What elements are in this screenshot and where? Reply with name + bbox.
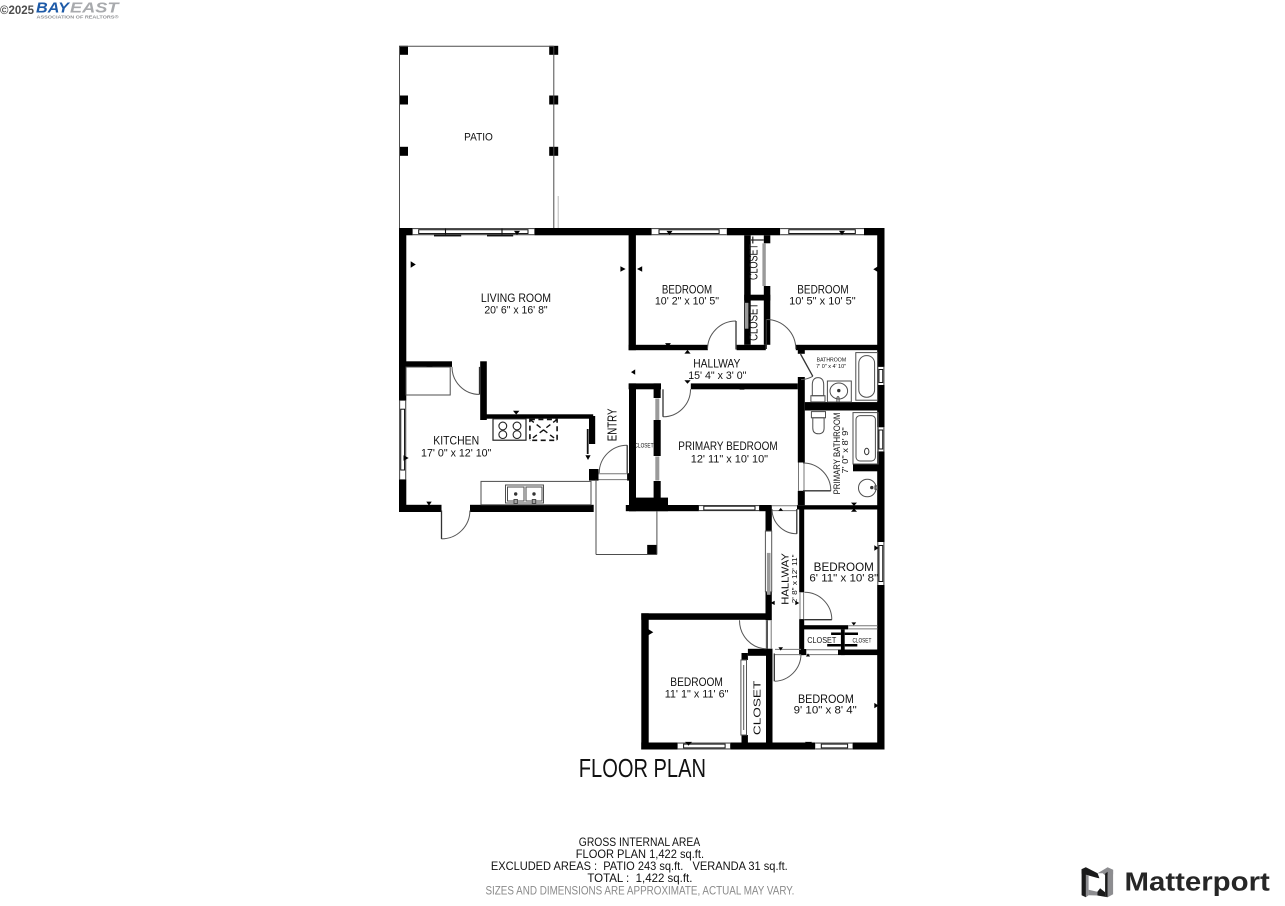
svg-text:BATHROOM: BATHROOM	[817, 358, 847, 364]
svg-text:CLOSET: CLOSET	[635, 444, 654, 450]
svg-text:SIZES AND DIMENSIONS ARE APPRO: SIZES AND DIMENSIONS ARE APPROXIMATE, AC…	[485, 884, 794, 897]
svg-text:CLOSET: CLOSET	[746, 244, 760, 280]
svg-text:20' 6" x 16' 8": 20' 6" x 16' 8"	[484, 305, 547, 317]
svg-text:CLOSET: CLOSET	[746, 302, 760, 341]
svg-text:TOTAL : 1,422 sq.ft.: TOTAL : 1,422 sq.ft.	[587, 872, 692, 885]
svg-text:CLOSET: CLOSET	[852, 638, 871, 644]
svg-text:FLOOR PLAN: FLOOR PLAN	[579, 753, 706, 783]
svg-text:2' 8" x 12' 11": 2' 8" x 12' 11"	[790, 554, 799, 603]
svg-text:HALLWAY: HALLWAY	[693, 357, 740, 370]
svg-text:10' 2" x 10' 5": 10' 2" x 10' 5"	[655, 296, 719, 308]
svg-text:7' 0" x 8' 9": 7' 0" x 8' 9"	[841, 427, 850, 473]
svg-text:CLOSET: CLOSET	[751, 680, 763, 735]
svg-text:11' 1" x 11' 6": 11' 1" x 11' 6"	[665, 689, 729, 701]
svg-text:ENTRY: ENTRY	[604, 408, 619, 441]
svg-text:CLOSET: CLOSET	[807, 635, 836, 645]
svg-text:10' 5" x 10' 5": 10' 5" x 10' 5"	[789, 296, 856, 308]
svg-text:PRIMARY BEDROOM: PRIMARY BEDROOM	[678, 440, 777, 453]
svg-text:Matterport: Matterport	[1125, 868, 1271, 896]
svg-text:6' 11" x 10' 8": 6' 11" x 10' 8"	[809, 573, 878, 585]
svg-text:KITCHEN: KITCHEN	[433, 435, 479, 448]
svg-text:BEDROOM: BEDROOM	[670, 676, 723, 689]
svg-text:17' 0" x 12' 10": 17' 0" x 12' 10"	[421, 448, 491, 460]
svg-text:12' 11" x 10' 10": 12' 11" x 10' 10"	[691, 453, 768, 465]
svg-text:15' 4" x 3' 0": 15' 4" x 3' 0"	[688, 370, 746, 382]
svg-text:©2025: ©2025	[0, 5, 35, 17]
svg-text:9' 10" x 8' 4": 9' 10" x 8' 4"	[794, 704, 857, 716]
svg-text:LIVING ROOM: LIVING ROOM	[481, 292, 551, 305]
svg-text:7' 0" x 4' 10": 7' 0" x 4' 10"	[816, 364, 846, 370]
svg-text:ASSOCIATION OF REALTORS®: ASSOCIATION OF REALTORS®	[37, 14, 120, 19]
svg-text:FLOOR PLAN 1,422 sq.ft.: FLOOR PLAN 1,422 sq.ft.	[576, 848, 704, 861]
svg-text:PATIO: PATIO	[464, 131, 493, 143]
svg-text:GROSS INTERNAL AREA: GROSS INTERNAL AREA	[579, 836, 701, 849]
